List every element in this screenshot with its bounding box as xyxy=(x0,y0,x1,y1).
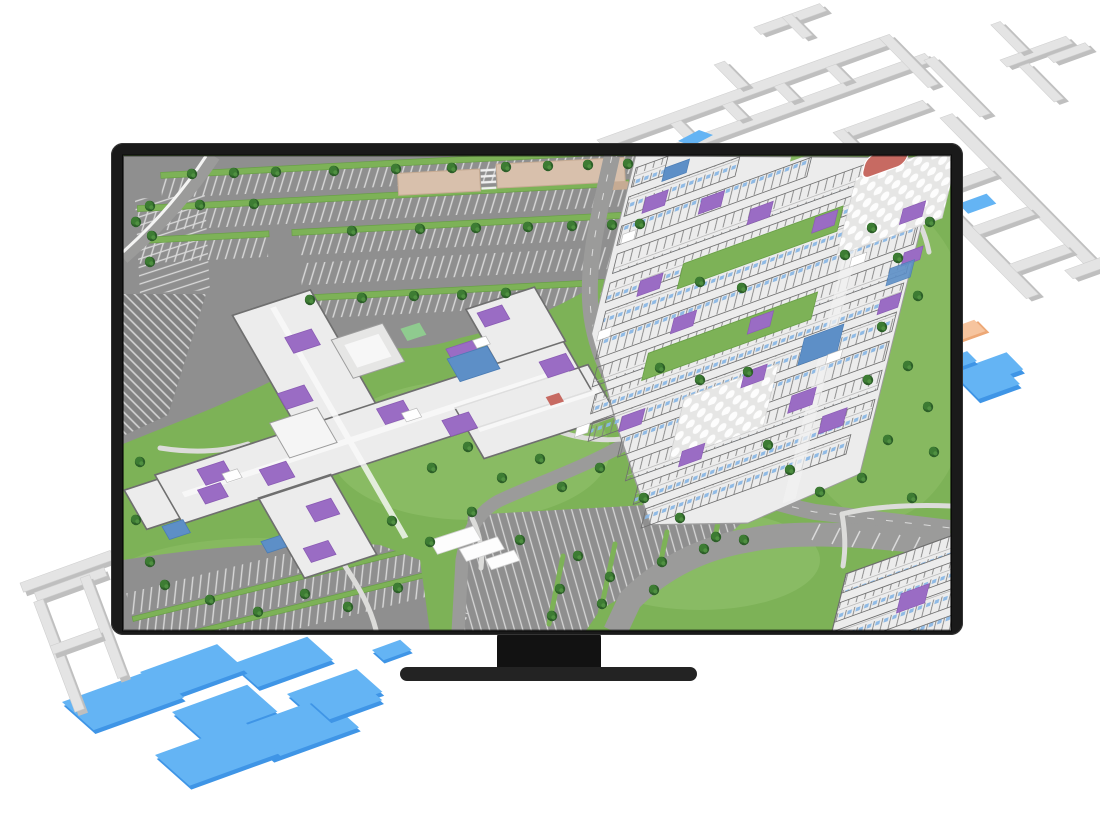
stand-neck xyxy=(497,630,601,672)
monitor-stand xyxy=(400,630,697,681)
stand-base xyxy=(400,667,697,681)
crosswalk xyxy=(480,166,496,193)
northeast-floorplan-walls xyxy=(972,4,1100,109)
illustration-stage xyxy=(0,0,1100,825)
blue-room-fragment xyxy=(958,194,996,214)
campus-map-illustration xyxy=(0,0,1100,825)
